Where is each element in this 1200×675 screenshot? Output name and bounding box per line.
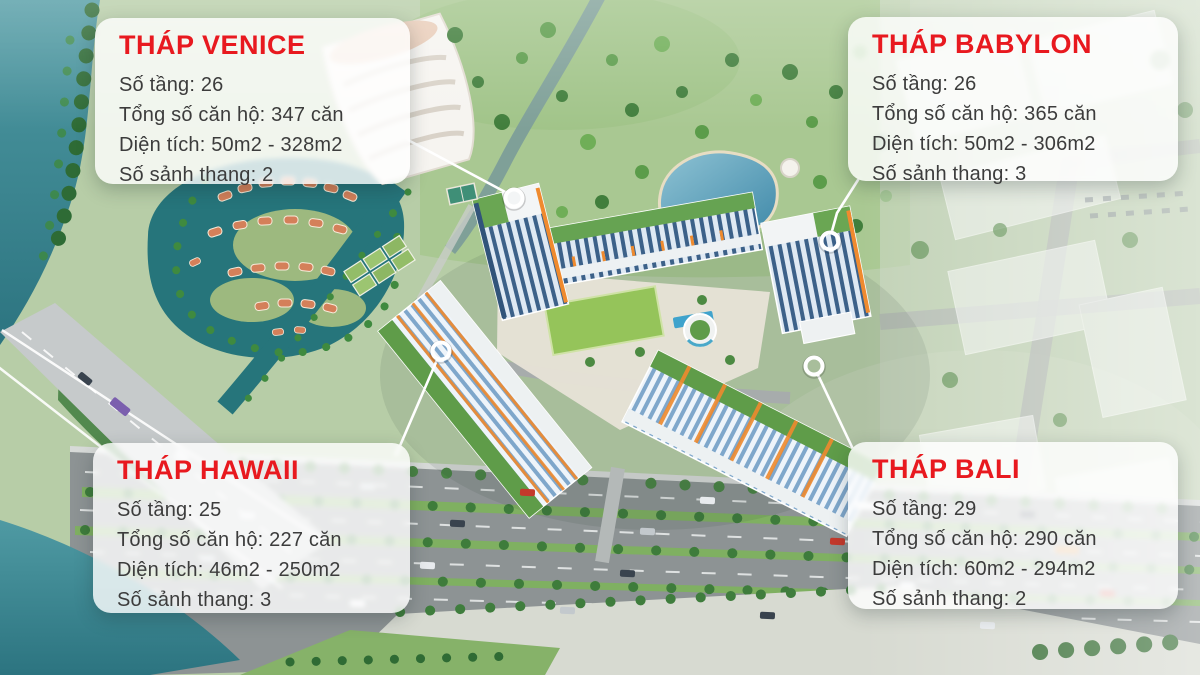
tower-name: THÁP BABYLON (872, 29, 1160, 60)
spec-lobbies: Số sảnh thang: 3 (872, 159, 1160, 189)
callout-thap-bali: THÁP BALI Số tầng: 29 Tổng số căn hộ: 29… (848, 442, 1178, 609)
callout-thap-babylon: THÁP BABYLON Số tầng: 26 Tổng số căn hộ:… (848, 17, 1178, 181)
spec-lobbies: Số sảnh thang: 2 (872, 584, 1160, 614)
spec-lobbies: Số sảnh thang: 3 (117, 585, 392, 615)
tower-name: THÁP BALI (872, 454, 1160, 485)
tower-name: THÁP HAWAII (117, 455, 392, 486)
callout-thap-venice: THÁP VENICE Số tầng: 26 Tổng số căn hộ: … (95, 18, 410, 184)
spec-units: Tổng số căn hộ: 227 căn (117, 525, 392, 555)
spec-units: Tổng số căn hộ: 347 căn (119, 100, 392, 130)
spec-units: Tổng số căn hộ: 290 căn (872, 524, 1160, 554)
spec-floors: Số tầng: 26 (119, 70, 392, 100)
spec-area: Diện tích: 60m2 - 294m2 (872, 554, 1160, 584)
tower-name: THÁP VENICE (119, 30, 392, 61)
spec-floors: Số tầng: 26 (872, 69, 1160, 99)
callout-thap-hawaii: THÁP HAWAII Số tầng: 25 Tổng số căn hộ: … (93, 443, 410, 613)
spec-units: Tổng số căn hộ: 365 căn (872, 99, 1160, 129)
spec-floors: Số tầng: 29 (872, 494, 1160, 524)
spec-area: Diện tích: 46m2 - 250m2 (117, 555, 392, 585)
spec-lobbies: Số sảnh thang: 2 (119, 160, 392, 190)
spec-area: Diện tích: 50m2 - 306m2 (872, 129, 1160, 159)
spec-floors: Số tầng: 25 (117, 495, 392, 525)
spec-area: Diện tích: 50m2 - 328m2 (119, 130, 392, 160)
aerial-render: THÁP VENICE Số tầng: 26 Tổng số căn hộ: … (0, 0, 1200, 675)
